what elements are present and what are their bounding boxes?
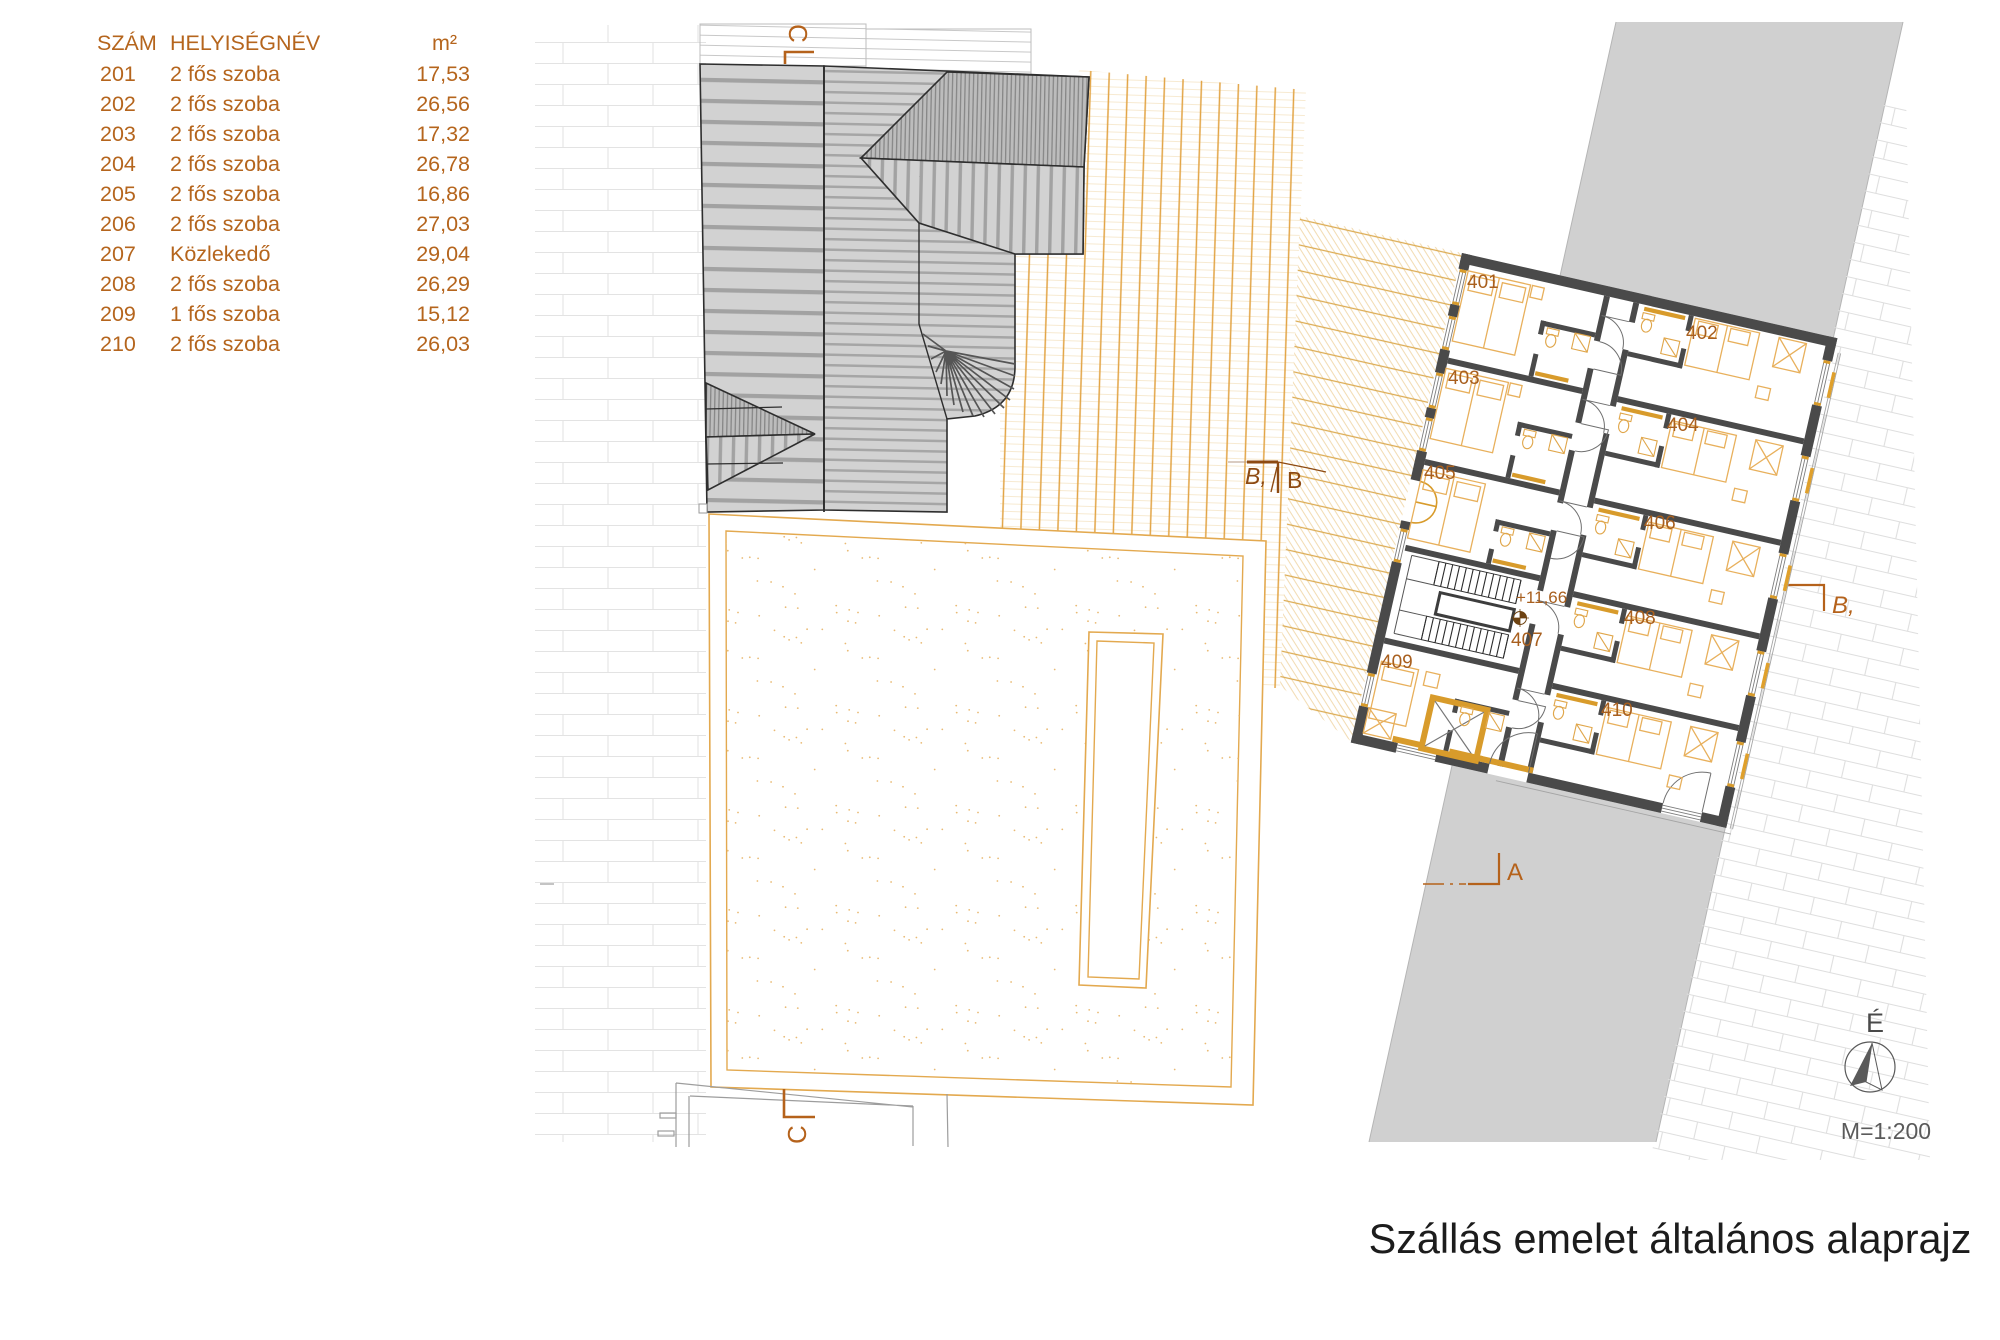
- svg-text:2 fős szoba: 2 fős szoba: [170, 212, 280, 236]
- svg-text:É: É: [1866, 1008, 1884, 1038]
- svg-text:17,53: 17,53: [416, 62, 470, 86]
- svg-text:27,03: 27,03: [416, 212, 470, 236]
- svg-text:201: 201: [100, 62, 136, 86]
- svg-text:26,78: 26,78: [416, 152, 470, 176]
- svg-text:C: C: [782, 1125, 812, 1144]
- svg-text:+11,66: +11,66: [1516, 588, 1567, 607]
- svg-text:26,03: 26,03: [416, 332, 470, 356]
- svg-text:HELYISÉGNÉV: HELYISÉGNÉV: [170, 30, 321, 55]
- svg-text:2 fős szoba: 2 fős szoba: [170, 182, 280, 206]
- svg-text:2 fős szoba: 2 fős szoba: [170, 272, 280, 296]
- svg-text:B: B: [1287, 467, 1302, 493]
- svg-text:2 fős szoba: 2 fős szoba: [170, 92, 280, 116]
- svg-text:Szállás emelet általános alapr: Szállás emelet általános alaprajz: [1369, 1216, 1972, 1262]
- svg-text:2 fős szoba: 2 fős szoba: [170, 62, 280, 86]
- svg-text:M=1:200: M=1:200: [1841, 1118, 1931, 1144]
- svg-text:26,29: 26,29: [416, 272, 470, 296]
- svg-text:207: 207: [100, 242, 136, 266]
- svg-text:404: 404: [1667, 415, 1699, 436]
- svg-text:17,32: 17,32: [416, 122, 470, 146]
- svg-text:m²: m²: [432, 31, 457, 55]
- svg-text:210: 210: [100, 332, 136, 356]
- svg-text:B,: B,: [1832, 592, 1855, 619]
- svg-text:408: 408: [1624, 608, 1656, 629]
- svg-text:402: 402: [1686, 323, 1718, 344]
- svg-text:15,12: 15,12: [416, 302, 470, 326]
- svg-text:403: 403: [1448, 368, 1480, 389]
- svg-text:203: 203: [100, 122, 136, 146]
- svg-text:Közlekedő: Közlekedő: [170, 242, 270, 266]
- svg-text:401: 401: [1467, 272, 1499, 293]
- svg-text:208: 208: [100, 272, 136, 296]
- svg-text:405: 405: [1424, 463, 1456, 484]
- svg-text:A: A: [1507, 859, 1523, 886]
- svg-text:C: C: [783, 24, 813, 43]
- svg-text:2 fős szoba: 2 fős szoba: [170, 332, 280, 356]
- svg-text:SZÁM: SZÁM: [97, 30, 157, 55]
- svg-text:406: 406: [1644, 513, 1676, 534]
- svg-text:B,: B,: [1245, 463, 1267, 489]
- svg-text:410: 410: [1601, 700, 1633, 721]
- svg-text:407: 407: [1511, 630, 1543, 651]
- svg-text:206: 206: [100, 212, 136, 236]
- svg-text:205: 205: [100, 182, 136, 206]
- svg-text:2 fős szoba: 2 fős szoba: [170, 152, 280, 176]
- svg-text:409: 409: [1381, 652, 1413, 673]
- svg-text:209: 209: [100, 302, 136, 326]
- svg-text:1 fős szoba: 1 fős szoba: [170, 302, 280, 326]
- svg-text:204: 204: [100, 152, 136, 176]
- svg-text:202: 202: [100, 92, 136, 116]
- svg-text:26,56: 26,56: [416, 92, 470, 116]
- svg-text:2 fős szoba: 2 fős szoba: [170, 122, 280, 146]
- svg-text:16,86: 16,86: [416, 182, 470, 206]
- svg-text:29,04: 29,04: [416, 242, 470, 266]
